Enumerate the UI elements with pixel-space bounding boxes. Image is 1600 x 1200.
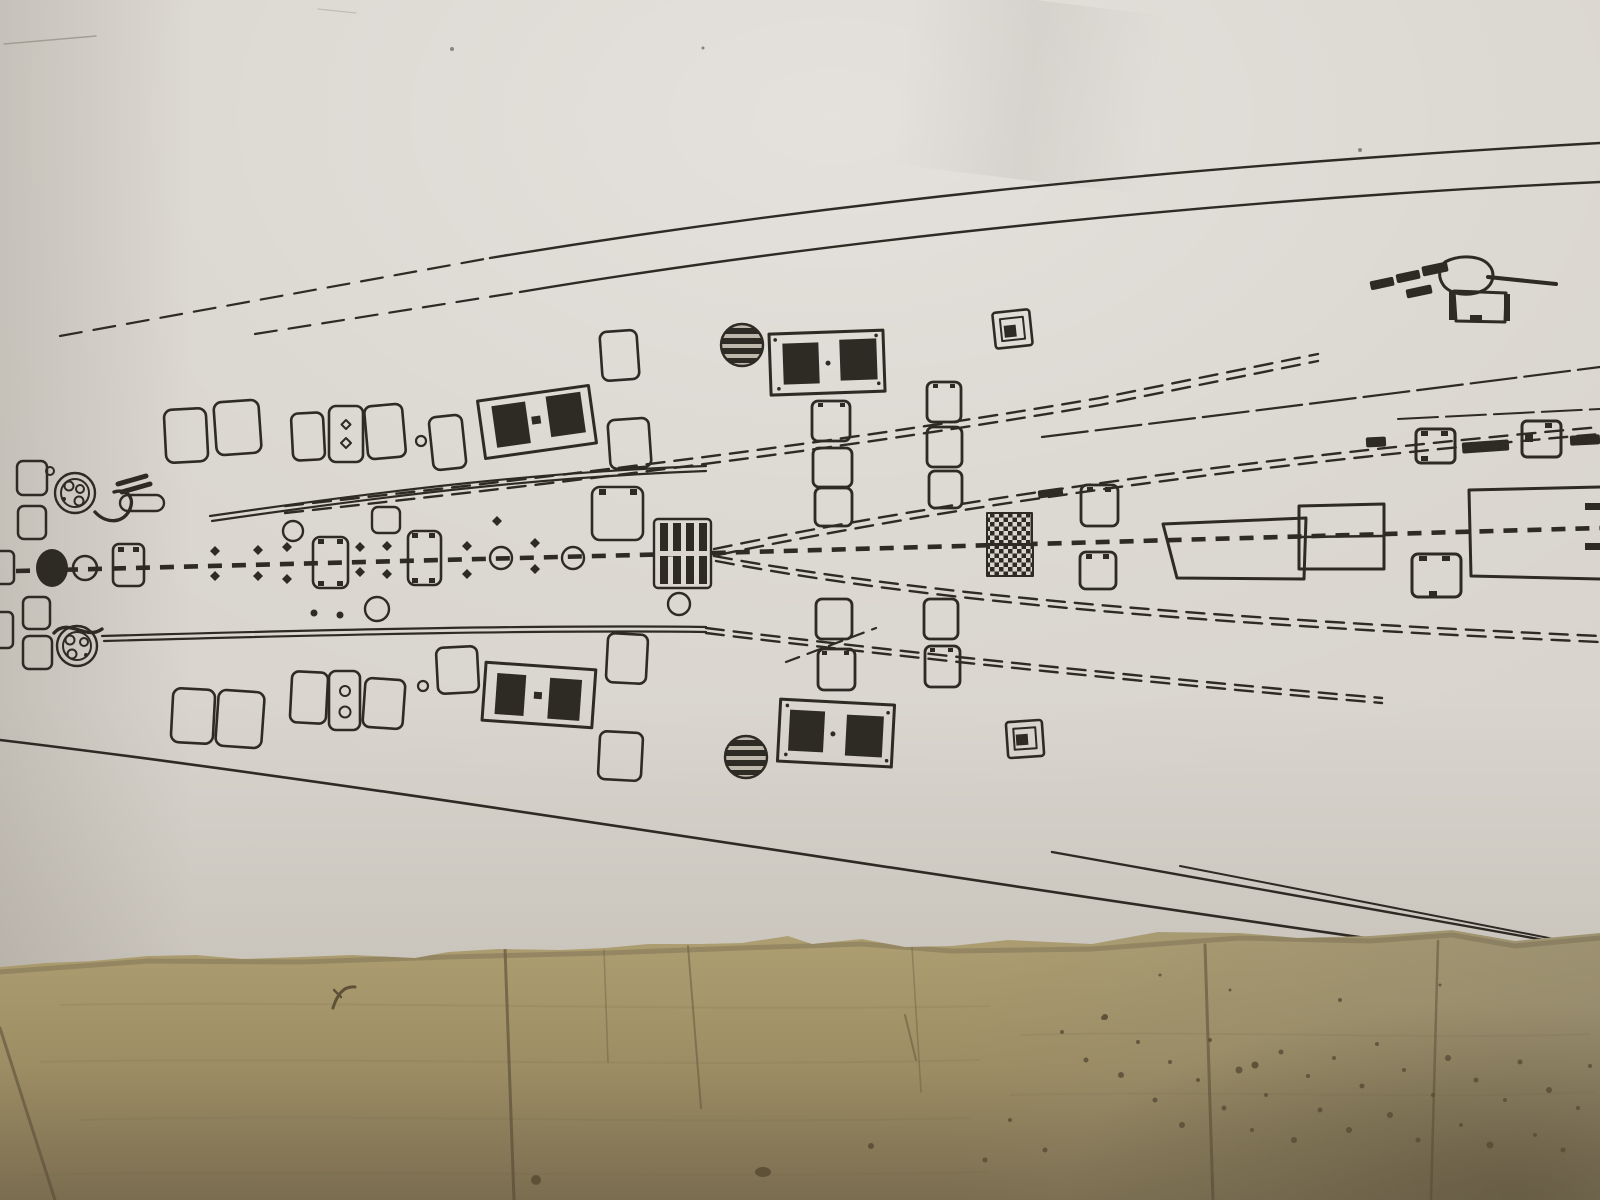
ventilator-bottom xyxy=(724,736,768,778)
ventilator-top xyxy=(720,324,764,366)
photo-of-ship-plan xyxy=(0,0,1600,1200)
capstan-black xyxy=(36,549,68,587)
deckhouse-midline xyxy=(1299,536,1384,537)
checkered-gratings xyxy=(987,513,1033,576)
slat-gap xyxy=(657,551,708,556)
grating xyxy=(987,513,1032,544)
grating xyxy=(987,545,1033,576)
scene-canvas xyxy=(0,0,1600,1200)
paper-shading xyxy=(0,0,1600,970)
